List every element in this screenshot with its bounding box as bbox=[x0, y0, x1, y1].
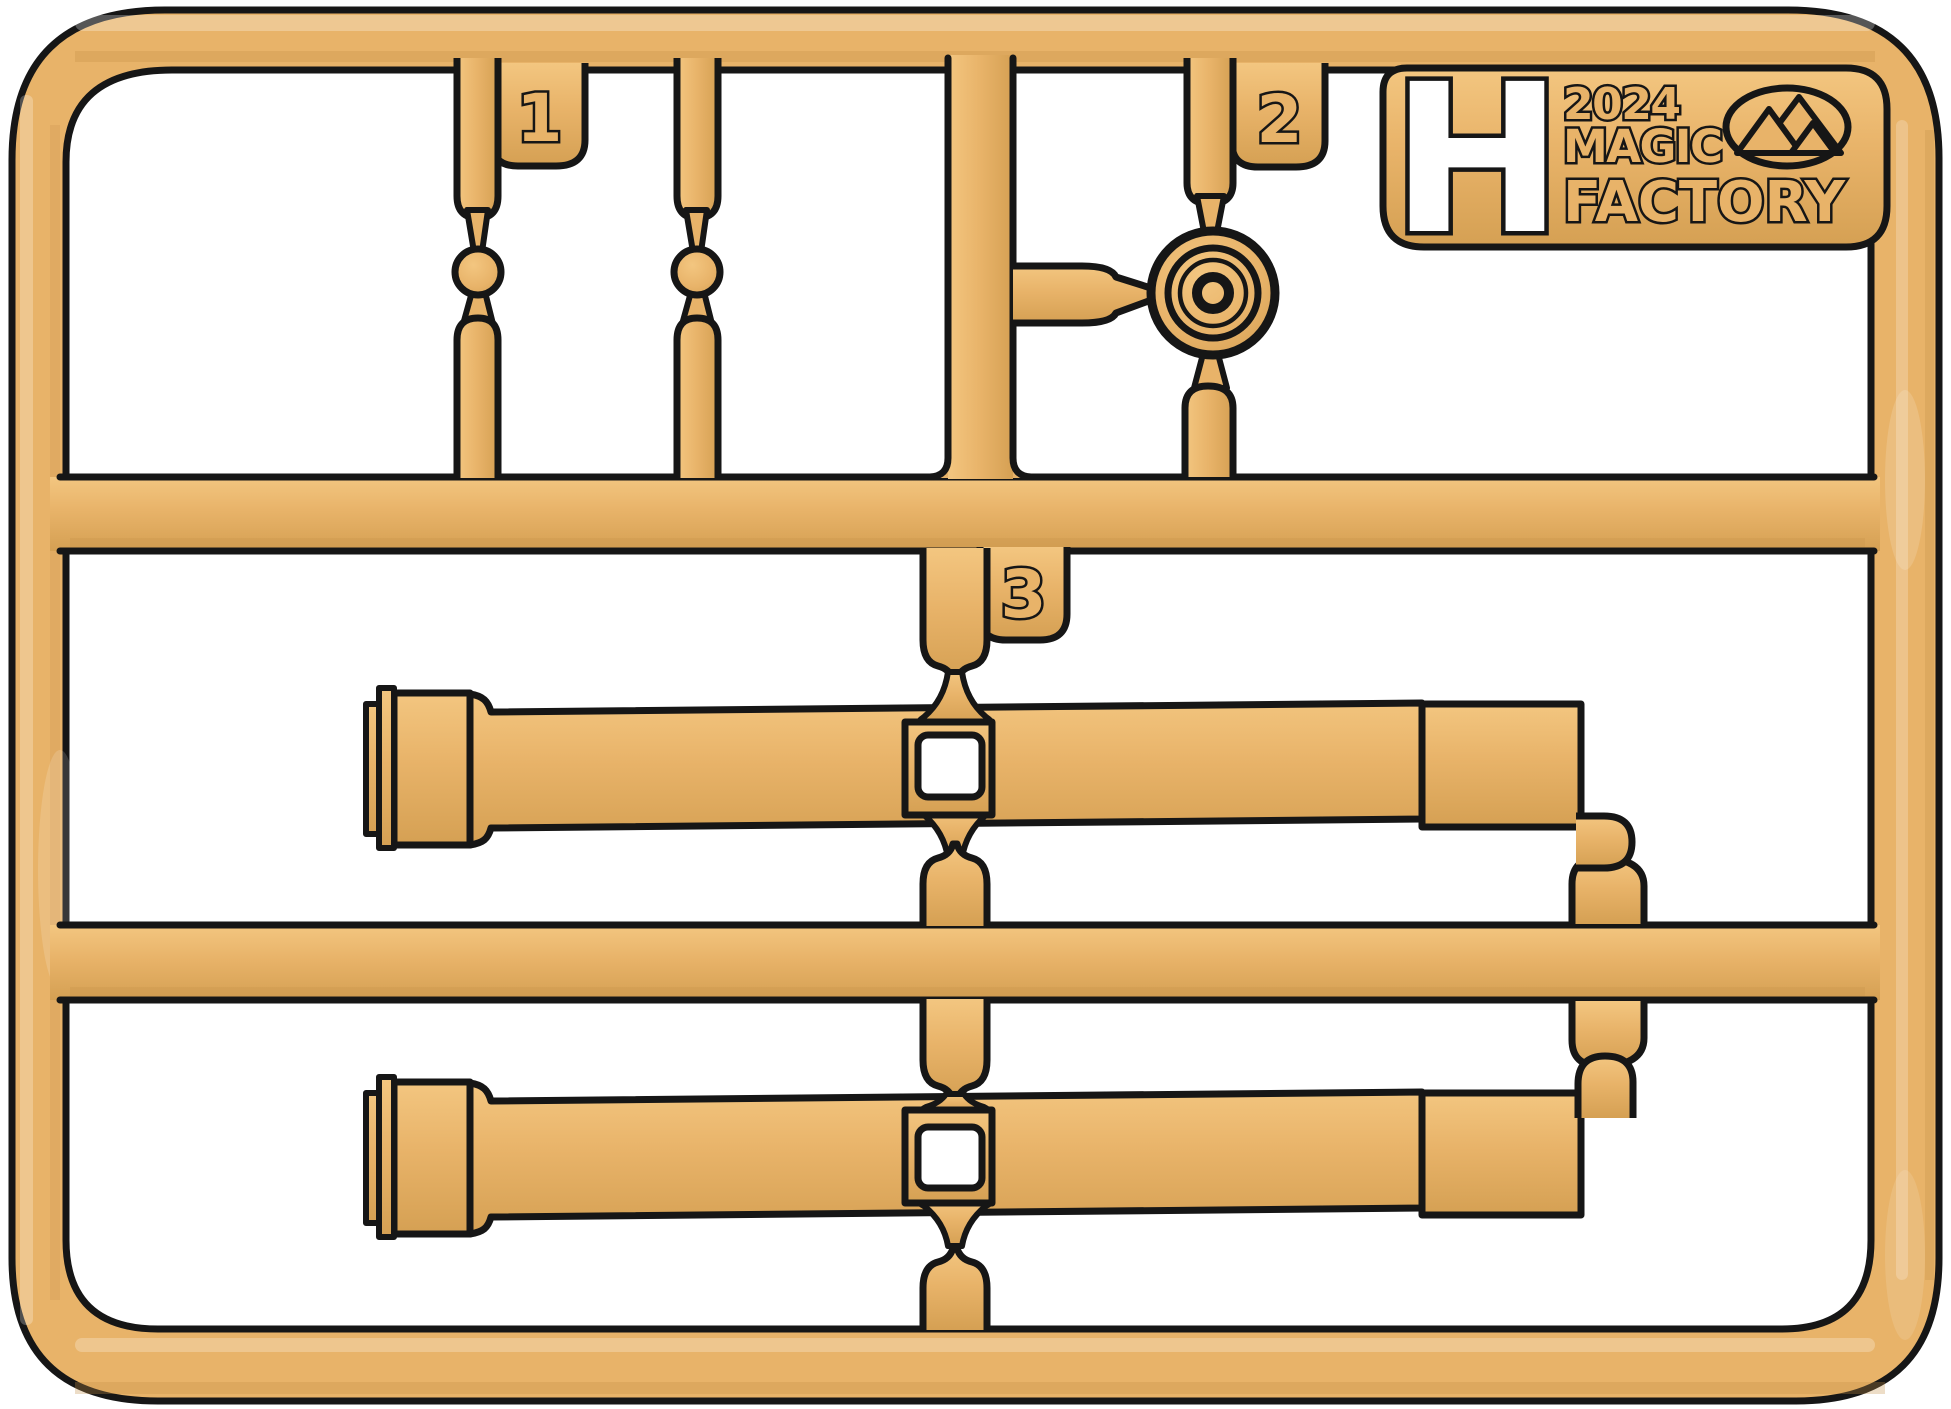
part-1-runner-left bbox=[455, 58, 501, 478]
sprue-letter: H bbox=[1391, 40, 1563, 280]
frame-shadow-bottom bbox=[75, 1382, 1885, 1394]
runner-vertical-left-edge bbox=[930, 58, 948, 477]
part-tag-3: 3 bbox=[980, 547, 1067, 640]
frame-shadow-right bbox=[1925, 130, 1934, 1280]
part-tag-3-number: 3 bbox=[1001, 556, 1048, 633]
runner-divider-1-shadow bbox=[70, 538, 1865, 547]
logo-plate: H 2024 MAGIC FACTORY bbox=[1383, 40, 1887, 280]
sprue-gate-flare bbox=[918, 1200, 992, 1246]
muzzle-ring bbox=[366, 704, 379, 834]
sprue-gate-rod bbox=[1187, 58, 1233, 204]
sprue-gate-rod bbox=[677, 58, 718, 218]
part-1-runner-right bbox=[674, 58, 720, 478]
sprue-gate-tab bbox=[1578, 1056, 1633, 1118]
sprue-illustration: 1 2 bbox=[0, 0, 1951, 1409]
part-tag-2: 2 bbox=[1232, 63, 1325, 167]
runner-divider-2 bbox=[50, 925, 1880, 1000]
sprue-gate-tab bbox=[1576, 816, 1632, 868]
part-1-ball bbox=[674, 249, 720, 295]
sprue-diagram-page: 1 2 bbox=[0, 0, 1951, 1409]
sprue-gate-rod bbox=[457, 318, 498, 478]
barrel-muzzle-sleeve bbox=[394, 1082, 470, 1234]
muzzle-ring bbox=[366, 1093, 379, 1223]
barrel-breech bbox=[1422, 1093, 1581, 1215]
sprue-gate-rod bbox=[457, 58, 498, 218]
part-tag-1: 1 bbox=[492, 63, 585, 166]
runner-divider-2-shadow bbox=[70, 987, 1865, 996]
barrel-collar-hole bbox=[918, 735, 982, 797]
frame-highlight-top bbox=[75, 15, 1875, 31]
part-3-barrel-lower bbox=[366, 999, 1644, 1330]
part-tag-1-number: 1 bbox=[517, 80, 564, 157]
part-2-wheel bbox=[1151, 231, 1275, 355]
frame-mold-mark-right bbox=[1885, 390, 1925, 570]
sprue-gate-branch bbox=[1013, 266, 1154, 323]
frame-highlight-left bbox=[20, 95, 33, 1325]
part-tag-2-number: 2 bbox=[1257, 81, 1304, 158]
sprue-gate-rod bbox=[923, 999, 987, 1100]
sprue-gate-flare bbox=[918, 672, 992, 724]
frame-shadow-left bbox=[50, 125, 60, 1300]
barrel-breech bbox=[1422, 704, 1581, 827]
sprue-gate-rod bbox=[1185, 386, 1233, 477]
sprue-gate-rod bbox=[923, 844, 987, 926]
sprue-gate-rod bbox=[923, 1248, 987, 1330]
part-1-ball bbox=[455, 249, 501, 295]
barrel-muzzle-sleeve bbox=[394, 693, 470, 845]
frame-highlight-right bbox=[1896, 120, 1908, 1280]
logo-brand-line2: FACTORY bbox=[1563, 170, 1846, 235]
runner-vertical-bar bbox=[948, 55, 1013, 479]
sprue-gate-rod bbox=[923, 548, 987, 680]
sprue-gate-rod bbox=[677, 318, 718, 478]
runner-divider-1 bbox=[50, 477, 1880, 551]
frame-mold-mark-right-2 bbox=[1885, 1170, 1925, 1340]
frame-highlight-bottom bbox=[75, 1338, 1875, 1352]
barrel-collar-hole bbox=[918, 1127, 982, 1188]
logo-brand-line1: MAGIC bbox=[1563, 120, 1723, 173]
